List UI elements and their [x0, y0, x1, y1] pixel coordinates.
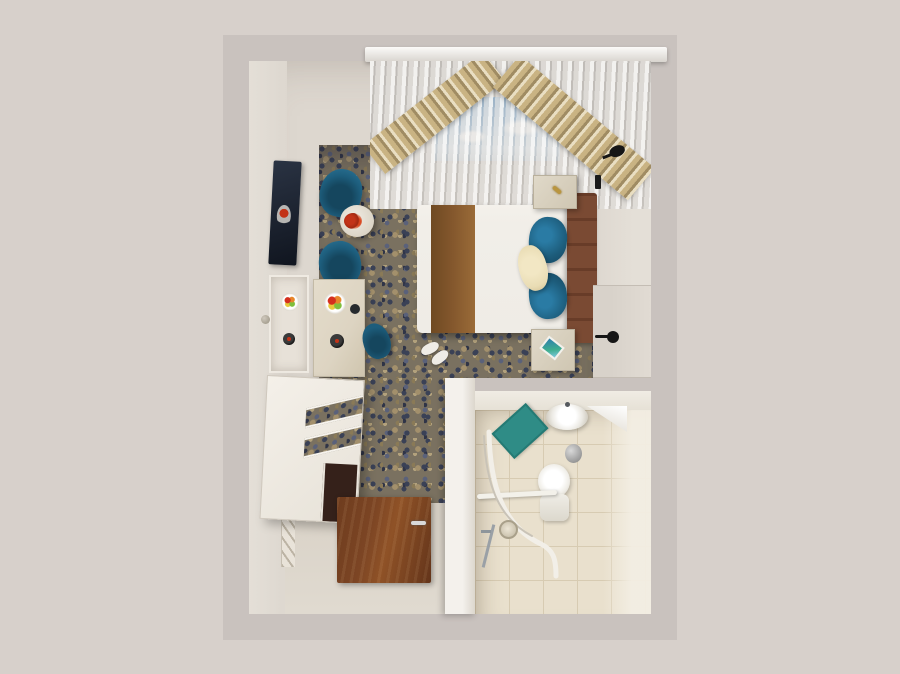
- book: [539, 336, 565, 361]
- shower-mixer-icon: [481, 530, 491, 533]
- window-curtain-zone: [370, 61, 651, 209]
- wall-hook: [261, 315, 270, 324]
- wine-bottle: [330, 334, 344, 348]
- fruit-plate: [324, 292, 346, 314]
- vanity-mirror: [269, 275, 309, 373]
- fruit-plate-reflection: [281, 293, 299, 311]
- bottle-cap-icon: [287, 337, 291, 341]
- entry-door-handle-icon: [411, 521, 426, 525]
- tv-screen-reflection: [276, 205, 291, 228]
- wine-bottle-reflection: [283, 333, 295, 345]
- marble-desk: [313, 279, 365, 377]
- room-key: [552, 185, 562, 194]
- dresser-open-shelf: [305, 395, 364, 428]
- room-render-scene: [0, 0, 900, 674]
- nightstand-top: [533, 175, 577, 209]
- fruit-icon: [284, 296, 296, 308]
- room-outline: [223, 35, 677, 640]
- bathroom-partition-wall: [445, 378, 477, 614]
- bottle-cap-icon: [335, 339, 339, 343]
- curtain-rail: [365, 47, 667, 62]
- bed-runner: [431, 205, 475, 333]
- nightstand-bottom: [531, 329, 575, 371]
- round-side-table: [340, 205, 374, 237]
- side-door: [593, 285, 651, 378]
- dresser-open-shelf: [304, 425, 363, 458]
- kettle-tray: [350, 304, 360, 314]
- door-handle-icon: [607, 331, 619, 343]
- shower-head: [499, 520, 518, 539]
- bathroom: [475, 378, 651, 614]
- wall-tv: [268, 160, 301, 265]
- shower-curtain-rail: [475, 378, 651, 614]
- red-flowers: [344, 213, 362, 229]
- fruit-icon: [327, 295, 343, 311]
- entry-door: [337, 497, 431, 583]
- wall-outlet: [595, 175, 601, 189]
